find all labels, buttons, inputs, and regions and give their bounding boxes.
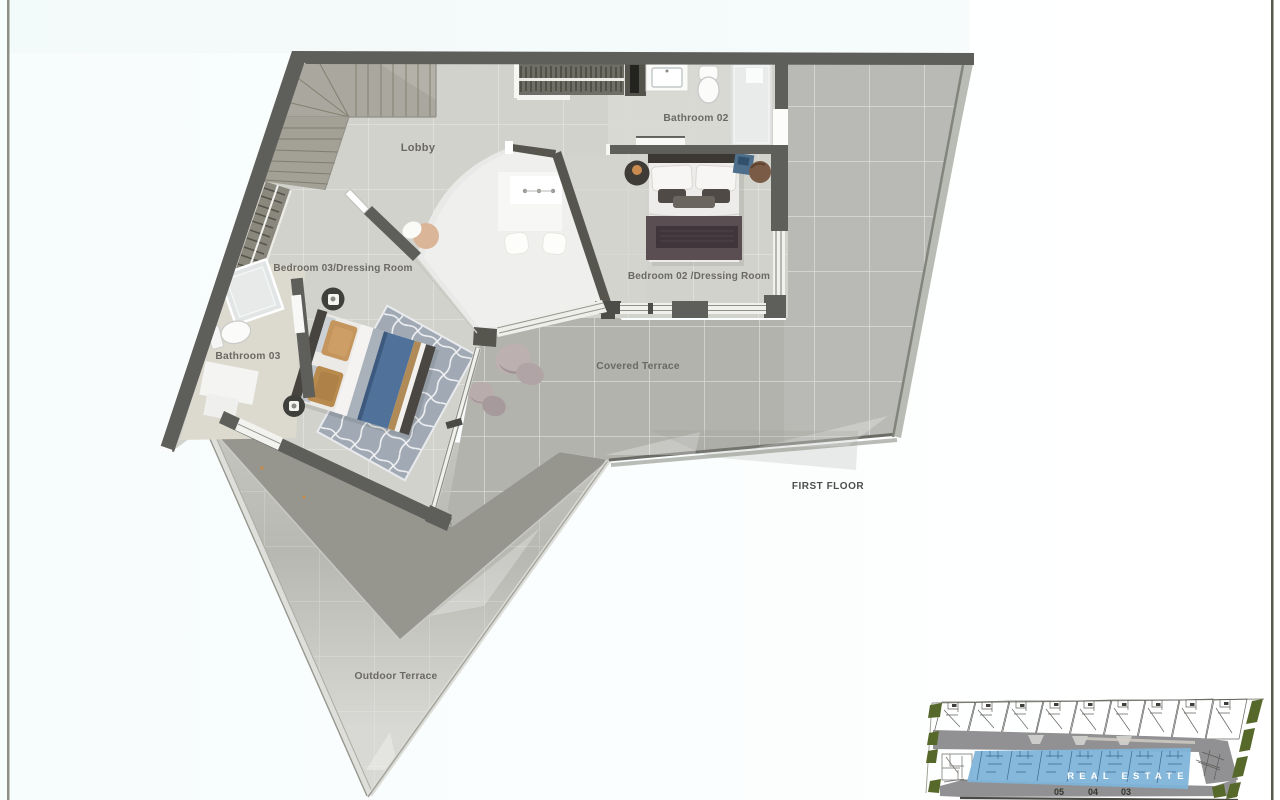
svg-text:03: 03 bbox=[1121, 787, 1131, 797]
svg-text:FIRST FLOOR: FIRST FLOOR bbox=[792, 481, 864, 492]
svg-text:Outdoor Terrace: Outdoor Terrace bbox=[355, 671, 438, 682]
svg-text:Bedroom 02 /Dressing Room: Bedroom 02 /Dressing Room bbox=[628, 271, 770, 282]
svg-text:Covered Terrace: Covered Terrace bbox=[596, 361, 680, 372]
svg-text:Bathroom 03: Bathroom 03 bbox=[215, 351, 280, 362]
svg-text:Bathroom 02: Bathroom 02 bbox=[663, 113, 728, 124]
svg-text:04: 04 bbox=[1088, 787, 1098, 797]
svg-text:05: 05 bbox=[1054, 787, 1064, 797]
svg-text:Lobby: Lobby bbox=[401, 142, 436, 154]
svg-text:REAL ESTATE: REAL ESTATE bbox=[1067, 771, 1189, 782]
svg-text:Bedroom 03/Dressing Room: Bedroom 03/Dressing Room bbox=[273, 263, 412, 274]
